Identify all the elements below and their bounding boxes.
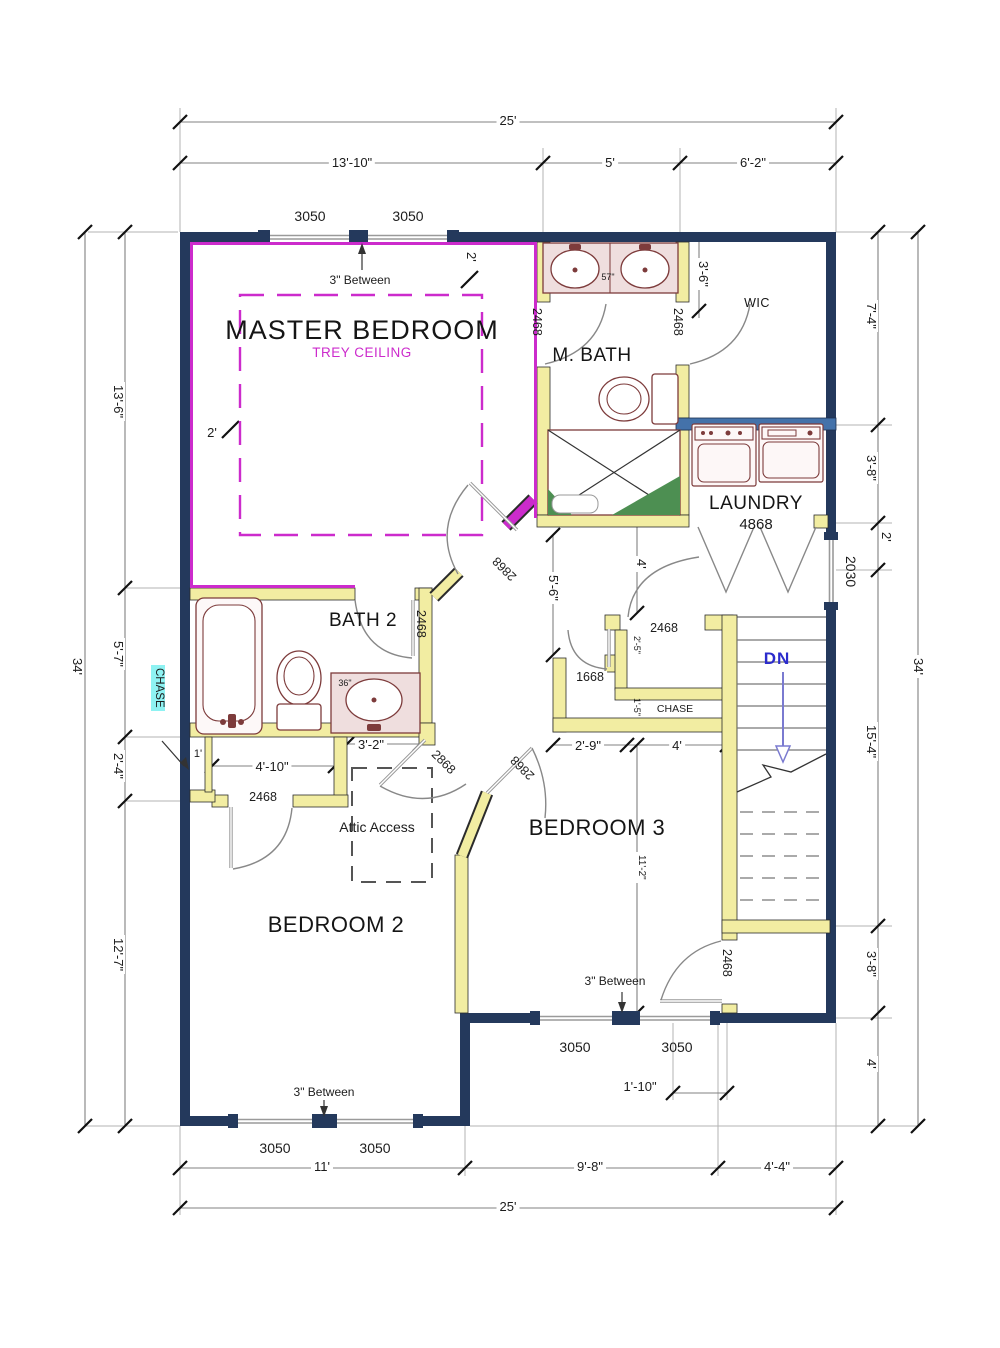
mbath-vanity-size: 57" xyxy=(601,273,614,282)
trey-ceiling-label: TREY CEILING xyxy=(312,346,412,360)
dim-bottom-b2: 11' xyxy=(311,1160,333,1173)
dim-chase-a: 1'-5" xyxy=(632,698,641,716)
window-label-b3-2: 3050 xyxy=(661,1040,692,1054)
dim-right-6: 4' xyxy=(865,1056,878,1072)
dim-bottom-stair: 4'-4" xyxy=(761,1160,793,1173)
door-label-linen: 1668 xyxy=(573,671,607,684)
dim-bottom-overall: 25' xyxy=(497,1200,520,1213)
dim-chase-b: 1' xyxy=(194,749,202,760)
window-label-master-2: 3050 xyxy=(392,209,423,223)
dim-hall-b: 4' xyxy=(635,556,648,572)
floor-plan-drawing xyxy=(0,0,1000,1348)
dim-b3-a: 11'-2" xyxy=(636,852,646,883)
window-label-b3-1: 3050 xyxy=(559,1040,590,1054)
dim-left-overall: 34' xyxy=(71,655,84,678)
room-label-bedroom3: BEDROOM 3 xyxy=(529,817,666,839)
dim-closet-a: 2'-5" xyxy=(632,636,641,654)
door-label-laundry: 4868 xyxy=(739,517,772,532)
window-label-b2-1: 3050 xyxy=(259,1141,290,1155)
bath2-vanity-size: 36" xyxy=(338,679,351,688)
door-label-bedroom2-closet: 2468 xyxy=(249,791,277,804)
dryer xyxy=(759,424,823,482)
window-note-master: 3" Between xyxy=(330,274,391,286)
bedroom3-rear-door-arc xyxy=(661,941,721,1000)
door-label-bath2: 2468 xyxy=(415,610,428,638)
floor-plan: 25' 13'-10" 5' 6'-2" 3050 3050 3" Betwee… xyxy=(0,0,1000,1348)
shower-bench xyxy=(552,495,598,513)
door-label-bedroom3-rear: 2468 xyxy=(721,946,734,980)
master-entry-door-arc xyxy=(447,485,468,574)
dim-bath2-a: 3'-2" xyxy=(355,738,387,751)
dim-right-3: 2' xyxy=(880,532,893,542)
chase-mid-label: CHASE xyxy=(657,704,693,715)
down-arrow-head xyxy=(776,746,790,762)
interior-walls xyxy=(190,242,836,1013)
dim-hall-c: 2'-9" xyxy=(572,739,604,752)
room-label-bedroom2: BEDROOM 2 xyxy=(268,914,405,936)
dim-trey-left: 2' xyxy=(207,426,217,439)
door-label-hall-closet: 2468 xyxy=(647,622,681,635)
dim-right-4: 15'-4" xyxy=(865,722,878,761)
dim-top-master: 13'-10" xyxy=(329,156,375,169)
window-label-master-1: 3050 xyxy=(294,209,325,223)
chase-left-label: CHASE xyxy=(152,665,166,711)
dim-b3-b: 1'-10" xyxy=(620,1080,659,1093)
dim-bottom-b3: 9'-8" xyxy=(574,1160,606,1173)
bath2-toilet-tank xyxy=(277,704,321,730)
room-label-wic: WIC xyxy=(744,297,770,310)
dim-right-5: 3'-8" xyxy=(865,948,878,980)
window-label-b2-2: 3050 xyxy=(359,1141,390,1155)
room-label-mbath: M. BATH xyxy=(552,346,631,365)
linen-door-arc xyxy=(568,630,607,669)
bedroom2-entry-door-arc xyxy=(380,784,466,799)
dim-top-mbath: 5' xyxy=(602,156,618,169)
bedroom2-closet-door-arc xyxy=(233,808,292,869)
mbath-toilet-tank xyxy=(652,374,678,424)
dim-left-4: 12'-7" xyxy=(112,935,125,974)
door-label-wic: 2468 xyxy=(672,308,685,336)
dim-trey-top: 2' xyxy=(465,252,478,262)
door-label-master-bath: 2468 xyxy=(531,308,544,336)
dim-left-3: 2'-4" xyxy=(112,750,125,782)
dim-left-2: 5'-7" xyxy=(112,638,125,670)
window-note-b2: 3" Between xyxy=(294,1086,355,1098)
dim-closet-b: 4'-10" xyxy=(252,760,291,773)
dim-right-overall: 34' xyxy=(912,655,925,678)
dim-top-wic: 6'-2" xyxy=(737,156,769,169)
dim-right-2: 3'-8" xyxy=(865,452,878,484)
room-label-master: MASTER BEDROOM xyxy=(225,317,499,344)
dim-left-1: 13'-6" xyxy=(112,382,125,421)
room-label-laundry: LAUNDRY xyxy=(709,494,803,513)
window-label-hall: 2030 xyxy=(844,556,858,587)
bedroom3-entry-door-arc xyxy=(532,748,546,818)
stairs-dn-label: DN xyxy=(764,650,791,667)
dim-wic-entry: 3'-6" xyxy=(697,258,710,290)
dim-hall-a: 5'-6" xyxy=(547,572,560,604)
dim-hall-d: 4' xyxy=(669,739,685,752)
window-note-b3: 3" Between xyxy=(585,975,646,987)
laundry-bifold-doors xyxy=(698,527,816,592)
dim-top-overall: 25' xyxy=(497,114,520,127)
dim-right-1: 7'-4" xyxy=(865,300,878,332)
attic-access-label: Attic Access xyxy=(339,820,414,834)
room-label-bath2: BATH 2 xyxy=(329,611,397,630)
